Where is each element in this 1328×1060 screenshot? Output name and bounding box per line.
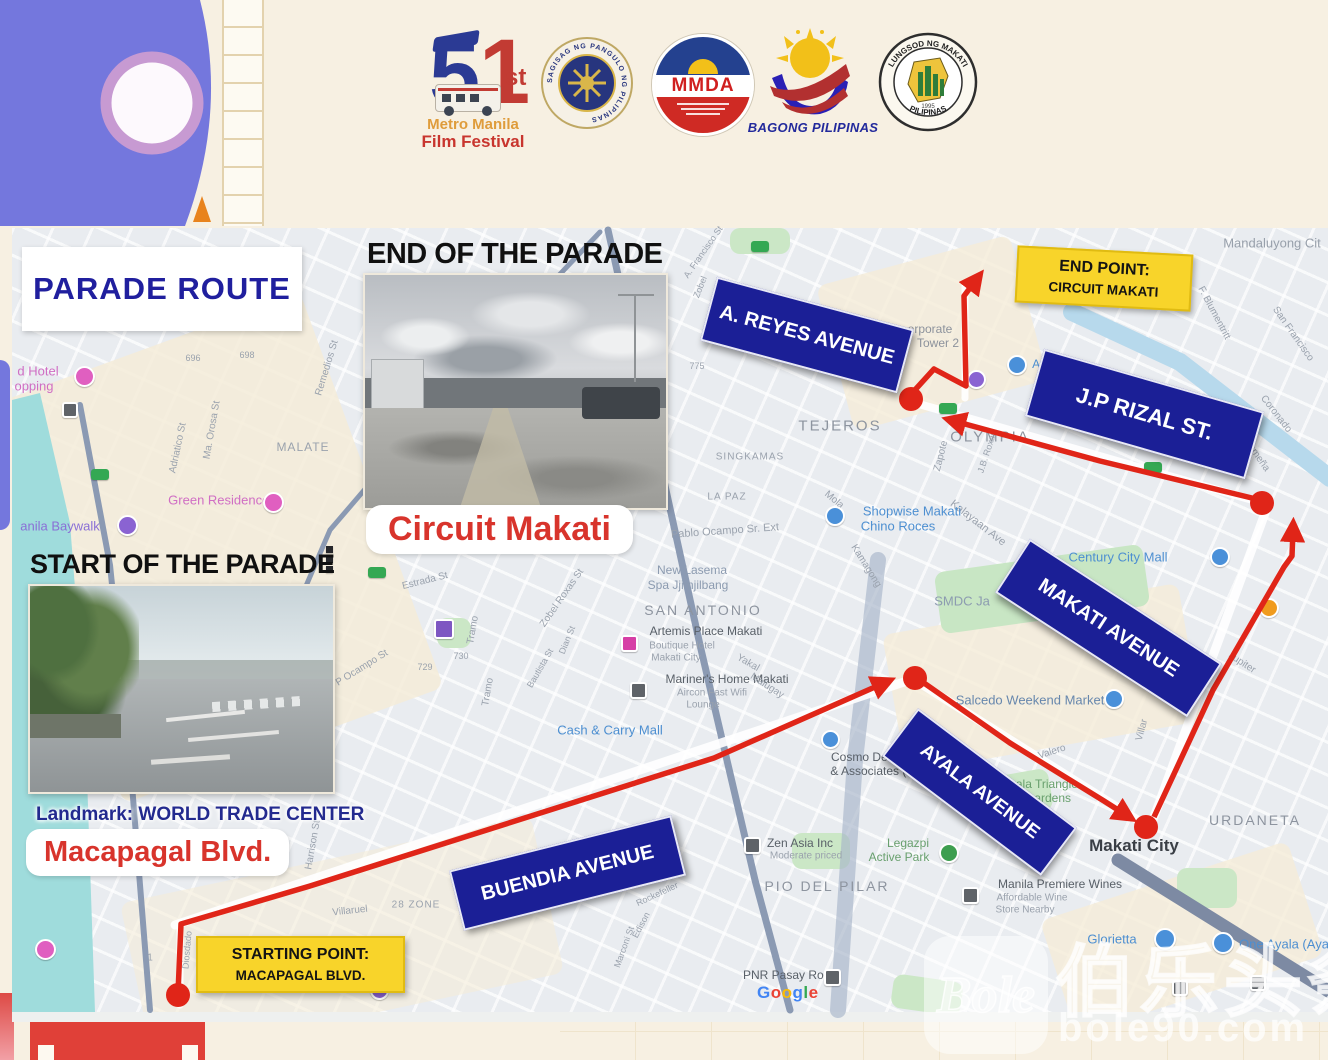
map-marker — [1104, 689, 1124, 709]
map-label: Tower 2 — [917, 336, 959, 350]
start-photo-macapagal-blvd — [28, 584, 335, 794]
map-label: URDANETA — [1209, 812, 1301, 828]
starting-point-line2: MACAPAGAL BLVD. — [208, 968, 393, 983]
map-label: Legazpi — [887, 836, 929, 850]
map-label: Century City Mall — [1069, 550, 1168, 565]
map-label: SINGKAMAS — [716, 452, 784, 463]
map-park — [1177, 868, 1237, 908]
map-label: 28 ZONE — [392, 900, 441, 911]
mmda-logo: MMDA — [652, 34, 754, 136]
circuit-makati-caption: Circuit Makati — [366, 505, 633, 554]
map-label: PNR Pasay Road — [743, 968, 837, 982]
watermark-url: bole90.com — [1058, 1006, 1308, 1051]
landmark-caption: Landmark: WORLD TRADE CENTER — [36, 804, 364, 826]
map-marker — [263, 492, 284, 513]
map-label: Manila Premiere Wines — [998, 877, 1122, 891]
parade-route-poster: 5 1 st Metro Manila Film Festival SAGISA… — [0, 0, 1328, 1060]
watermark-logo-box: Bole — [924, 936, 1048, 1054]
starting-point-callout: STARTING POINT: MACAPAGAL BLVD. — [196, 936, 405, 993]
map-marker — [62, 402, 78, 418]
map-label: 775 — [689, 361, 704, 371]
mmff-line2: Film Festival — [413, 132, 533, 152]
left-purple-decoration — [0, 360, 10, 530]
map-label: Active Park — [869, 850, 930, 864]
watermark-logo-text: Bole — [937, 966, 1035, 1025]
map-marker — [939, 843, 959, 863]
orange-triangle-decoration — [193, 196, 211, 222]
map-label: Aircon Fast Wifi — [677, 688, 747, 699]
google-logo: Google — [757, 983, 819, 1003]
google-letter: g — [793, 983, 804, 1002]
map-label: LA PAZ — [707, 492, 746, 503]
map-label: 730 — [453, 651, 468, 661]
end-point-line1: END POINT: — [1028, 256, 1181, 282]
map-marker — [744, 837, 761, 854]
map-marker — [434, 619, 454, 639]
map-label: Moderate priced — [770, 851, 842, 862]
macapagal-blvd-caption: Macapagal Blvd. — [26, 829, 289, 876]
map-label: Zen Asia Inc — [767, 836, 833, 850]
makati-seal-year: 1995 — [921, 104, 935, 110]
google-letter: e — [809, 983, 819, 1002]
map-marker — [368, 567, 386, 578]
map-label: Shopwise Makati — [863, 504, 961, 519]
film-strip-decoration — [222, 0, 264, 226]
map-label: New Lasema — [657, 563, 727, 577]
end-point-callout: END POINT: CIRCUIT MAKATI — [1015, 245, 1194, 311]
map-marker — [939, 403, 957, 414]
map-marker — [967, 370, 986, 389]
map-marker — [825, 506, 845, 526]
map-label: Mandaluyong Cit — [1223, 236, 1321, 251]
mmff-suffix: st — [505, 64, 526, 92]
map-marker — [751, 241, 769, 252]
purple-blob-decoration — [0, 0, 240, 226]
map-label: Store Nearby — [996, 905, 1055, 916]
mmff-line1: Metro Manila — [413, 116, 533, 133]
map-label: 1 — [147, 953, 153, 964]
map-marker — [74, 366, 95, 387]
sign-jp-rizal-label: J.P RIZAL ST. — [1073, 382, 1216, 446]
presidential-seal-logo: SAGISAG NG PANGULO NG PILIPINAS — [540, 36, 634, 130]
parade-route-title: PARADE ROUTE — [33, 271, 291, 307]
map-marker — [91, 469, 109, 480]
map-label: 698 — [239, 350, 254, 360]
map-label: d Hotel — [17, 364, 58, 379]
end-of-parade-heading: END OF THE PARADE — [367, 238, 662, 271]
map-label: SMDC Ja — [934, 594, 990, 609]
parade-route-title-box: PARADE ROUTE — [22, 247, 302, 331]
map-label: TEJEROS — [798, 418, 881, 435]
map-marker — [117, 515, 138, 536]
map-marker — [824, 969, 841, 986]
bagong-pilipinas-label: BAGONG PILIPINAS — [743, 120, 883, 135]
map-label: 729 — [417, 662, 432, 672]
makati-seal-logo: LUNGSOD NG MAKATI PILIPINAS 1995 — [878, 32, 978, 132]
map-marker — [630, 682, 647, 699]
start-of-parade-heading: START OF THE PARADE — [30, 549, 335, 580]
red-clapper-decoration — [30, 1022, 205, 1060]
map-label: Affordable Wine — [997, 893, 1068, 904]
map-label: Spa Jjimjilbang — [648, 578, 729, 592]
map-label: MALATE — [276, 440, 329, 454]
map-marker — [621, 635, 638, 652]
map-label: Salcedo Weekend Market — [956, 693, 1105, 708]
end-point-line2: CIRCUIT MAKATI — [1027, 278, 1180, 301]
map-label: Green Residences — [168, 493, 276, 508]
map-label: Artemis Place Makati — [650, 624, 763, 638]
bagong-pilipinas-logo — [760, 26, 856, 122]
map-label: Lounge — [686, 700, 719, 711]
map-label: SAN ANTONIO — [644, 602, 761, 618]
map-label: opping — [14, 379, 53, 394]
mmda-label: MMDA — [671, 75, 734, 97]
map-label: Makati City — [1089, 836, 1179, 856]
jeepney-icon — [435, 84, 501, 112]
map-label: 696 — [185, 353, 200, 363]
map-marker — [1007, 355, 1027, 375]
map-label: Cash & Carry Mall — [557, 723, 662, 738]
map-marker — [962, 887, 979, 904]
map-marker — [1259, 598, 1279, 618]
google-letter: o — [771, 983, 782, 1002]
mmff-51st-logo: 5 1 st Metro Manila Film Festival — [413, 24, 533, 150]
google-letter: G — [757, 983, 771, 1002]
map-label: anila Baywalk — [20, 519, 100, 534]
map-label: Makati City — [651, 653, 700, 664]
starting-point-line1: STARTING POINT: — [208, 946, 393, 964]
map-label: orporate — [908, 322, 953, 336]
map-label: PIO DEL PILAR — [764, 878, 889, 894]
map-marker — [35, 939, 56, 960]
map-marker — [1144, 462, 1162, 473]
google-letter: o — [782, 983, 793, 1002]
map-marker — [1210, 547, 1230, 567]
map-marker — [821, 730, 840, 749]
map-label: Boutique Hotel — [649, 641, 715, 652]
end-photo-circuit-makati — [363, 273, 668, 510]
map-label: Chino Roces — [861, 519, 935, 534]
